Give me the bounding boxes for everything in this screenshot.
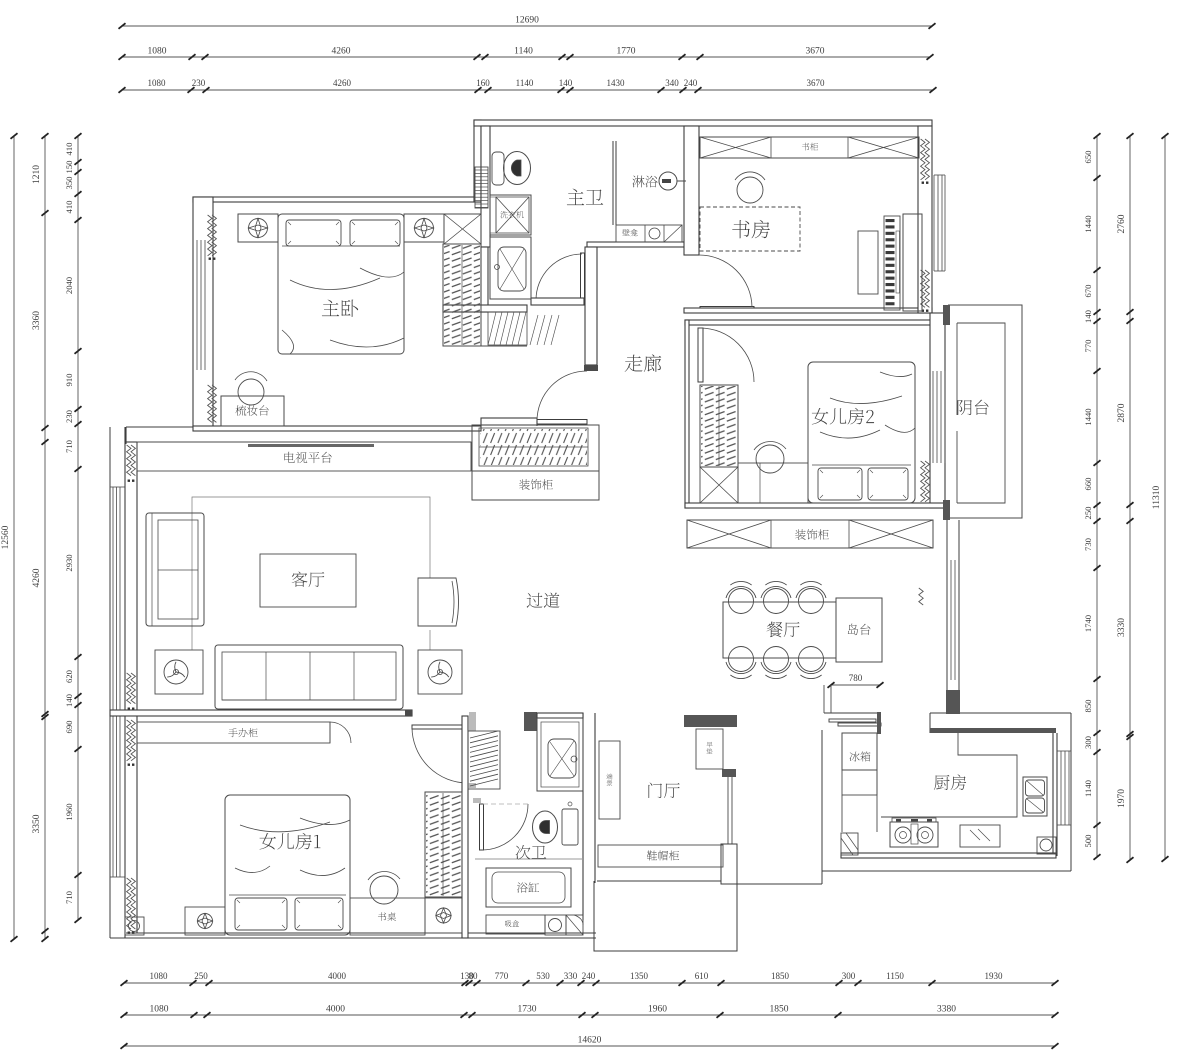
svg-text:620: 620 [64, 670, 74, 683]
svg-text:4000: 4000 [328, 971, 347, 981]
svg-text:1210: 1210 [32, 165, 42, 184]
svg-text:14620: 14620 [578, 1035, 602, 1045]
svg-text:690: 690 [64, 721, 74, 734]
svg-text:770: 770 [495, 971, 509, 981]
svg-text:250: 250 [194, 971, 208, 981]
svg-text:80: 80 [469, 971, 479, 981]
svg-text:3330: 3330 [1117, 618, 1127, 637]
svg-text:850: 850 [1083, 700, 1093, 713]
svg-text:230: 230 [192, 78, 206, 88]
svg-text:410: 410 [64, 143, 74, 156]
svg-text:240: 240 [582, 971, 596, 981]
svg-text:150: 150 [64, 161, 74, 174]
svg-text:410: 410 [64, 201, 74, 214]
svg-text:4260: 4260 [332, 46, 351, 56]
svg-text:500: 500 [1083, 835, 1093, 848]
svg-text:710: 710 [64, 891, 74, 904]
svg-text:3350: 3350 [32, 814, 42, 833]
svg-text:1730: 1730 [518, 1004, 537, 1014]
svg-text:3360: 3360 [32, 311, 42, 330]
svg-text:160: 160 [476, 78, 490, 88]
svg-text:1350: 1350 [630, 971, 649, 981]
svg-text:3380: 3380 [937, 1004, 956, 1014]
svg-text:12690: 12690 [515, 15, 539, 25]
svg-text:1440: 1440 [1083, 408, 1093, 425]
svg-text:1850: 1850 [771, 971, 790, 981]
svg-text:610: 610 [695, 971, 709, 981]
svg-text:1080: 1080 [148, 46, 167, 56]
svg-text:330: 330 [564, 971, 578, 981]
svg-text:910: 910 [64, 374, 74, 387]
svg-text:530: 530 [536, 971, 550, 981]
svg-text:4000: 4000 [326, 1004, 345, 1014]
svg-text:780: 780 [849, 673, 863, 683]
svg-text:1740: 1740 [1083, 615, 1093, 632]
svg-text:1770: 1770 [617, 46, 636, 56]
svg-text:12560: 12560 [1, 525, 11, 549]
svg-text:1430: 1430 [607, 78, 626, 88]
svg-text:650: 650 [1083, 151, 1093, 164]
svg-text:1960: 1960 [648, 1004, 667, 1014]
svg-text:1440: 1440 [1083, 215, 1093, 232]
svg-text:730: 730 [1083, 538, 1093, 551]
svg-text:1080: 1080 [148, 78, 167, 88]
svg-text:2930: 2930 [64, 554, 74, 571]
svg-text:1140: 1140 [514, 46, 533, 56]
svg-text:340: 340 [665, 78, 679, 88]
svg-text:350: 350 [64, 177, 74, 190]
svg-text:140: 140 [64, 694, 74, 707]
svg-text:1150: 1150 [886, 971, 904, 981]
svg-text:1140: 1140 [516, 78, 534, 88]
svg-text:770: 770 [1083, 340, 1093, 353]
svg-text:4260: 4260 [32, 568, 42, 587]
svg-text:140: 140 [1083, 310, 1093, 323]
svg-text:1960: 1960 [64, 803, 74, 820]
svg-text:3670: 3670 [806, 46, 825, 56]
svg-text:2040: 2040 [64, 277, 74, 294]
svg-text:710: 710 [64, 440, 74, 453]
svg-text:2870: 2870 [1117, 403, 1127, 422]
svg-text:230: 230 [64, 410, 74, 423]
svg-text:240: 240 [684, 78, 698, 88]
svg-text:1140: 1140 [1083, 780, 1093, 797]
svg-text:11310: 11310 [1152, 486, 1162, 510]
svg-text:1970: 1970 [1117, 789, 1127, 808]
svg-text:1080: 1080 [150, 1004, 169, 1014]
svg-text:660: 660 [1083, 478, 1093, 491]
svg-text:3670: 3670 [807, 78, 826, 88]
svg-text:300: 300 [1083, 736, 1093, 749]
svg-text:1930: 1930 [985, 971, 1004, 981]
svg-text:250: 250 [1083, 507, 1093, 520]
svg-text:1080: 1080 [150, 971, 169, 981]
svg-text:4260: 4260 [333, 78, 352, 88]
svg-text:2760: 2760 [1117, 214, 1127, 233]
svg-text:1850: 1850 [770, 1004, 789, 1014]
svg-text:140: 140 [559, 78, 573, 88]
svg-text:670: 670 [1083, 285, 1093, 298]
svg-text:300: 300 [842, 971, 856, 981]
